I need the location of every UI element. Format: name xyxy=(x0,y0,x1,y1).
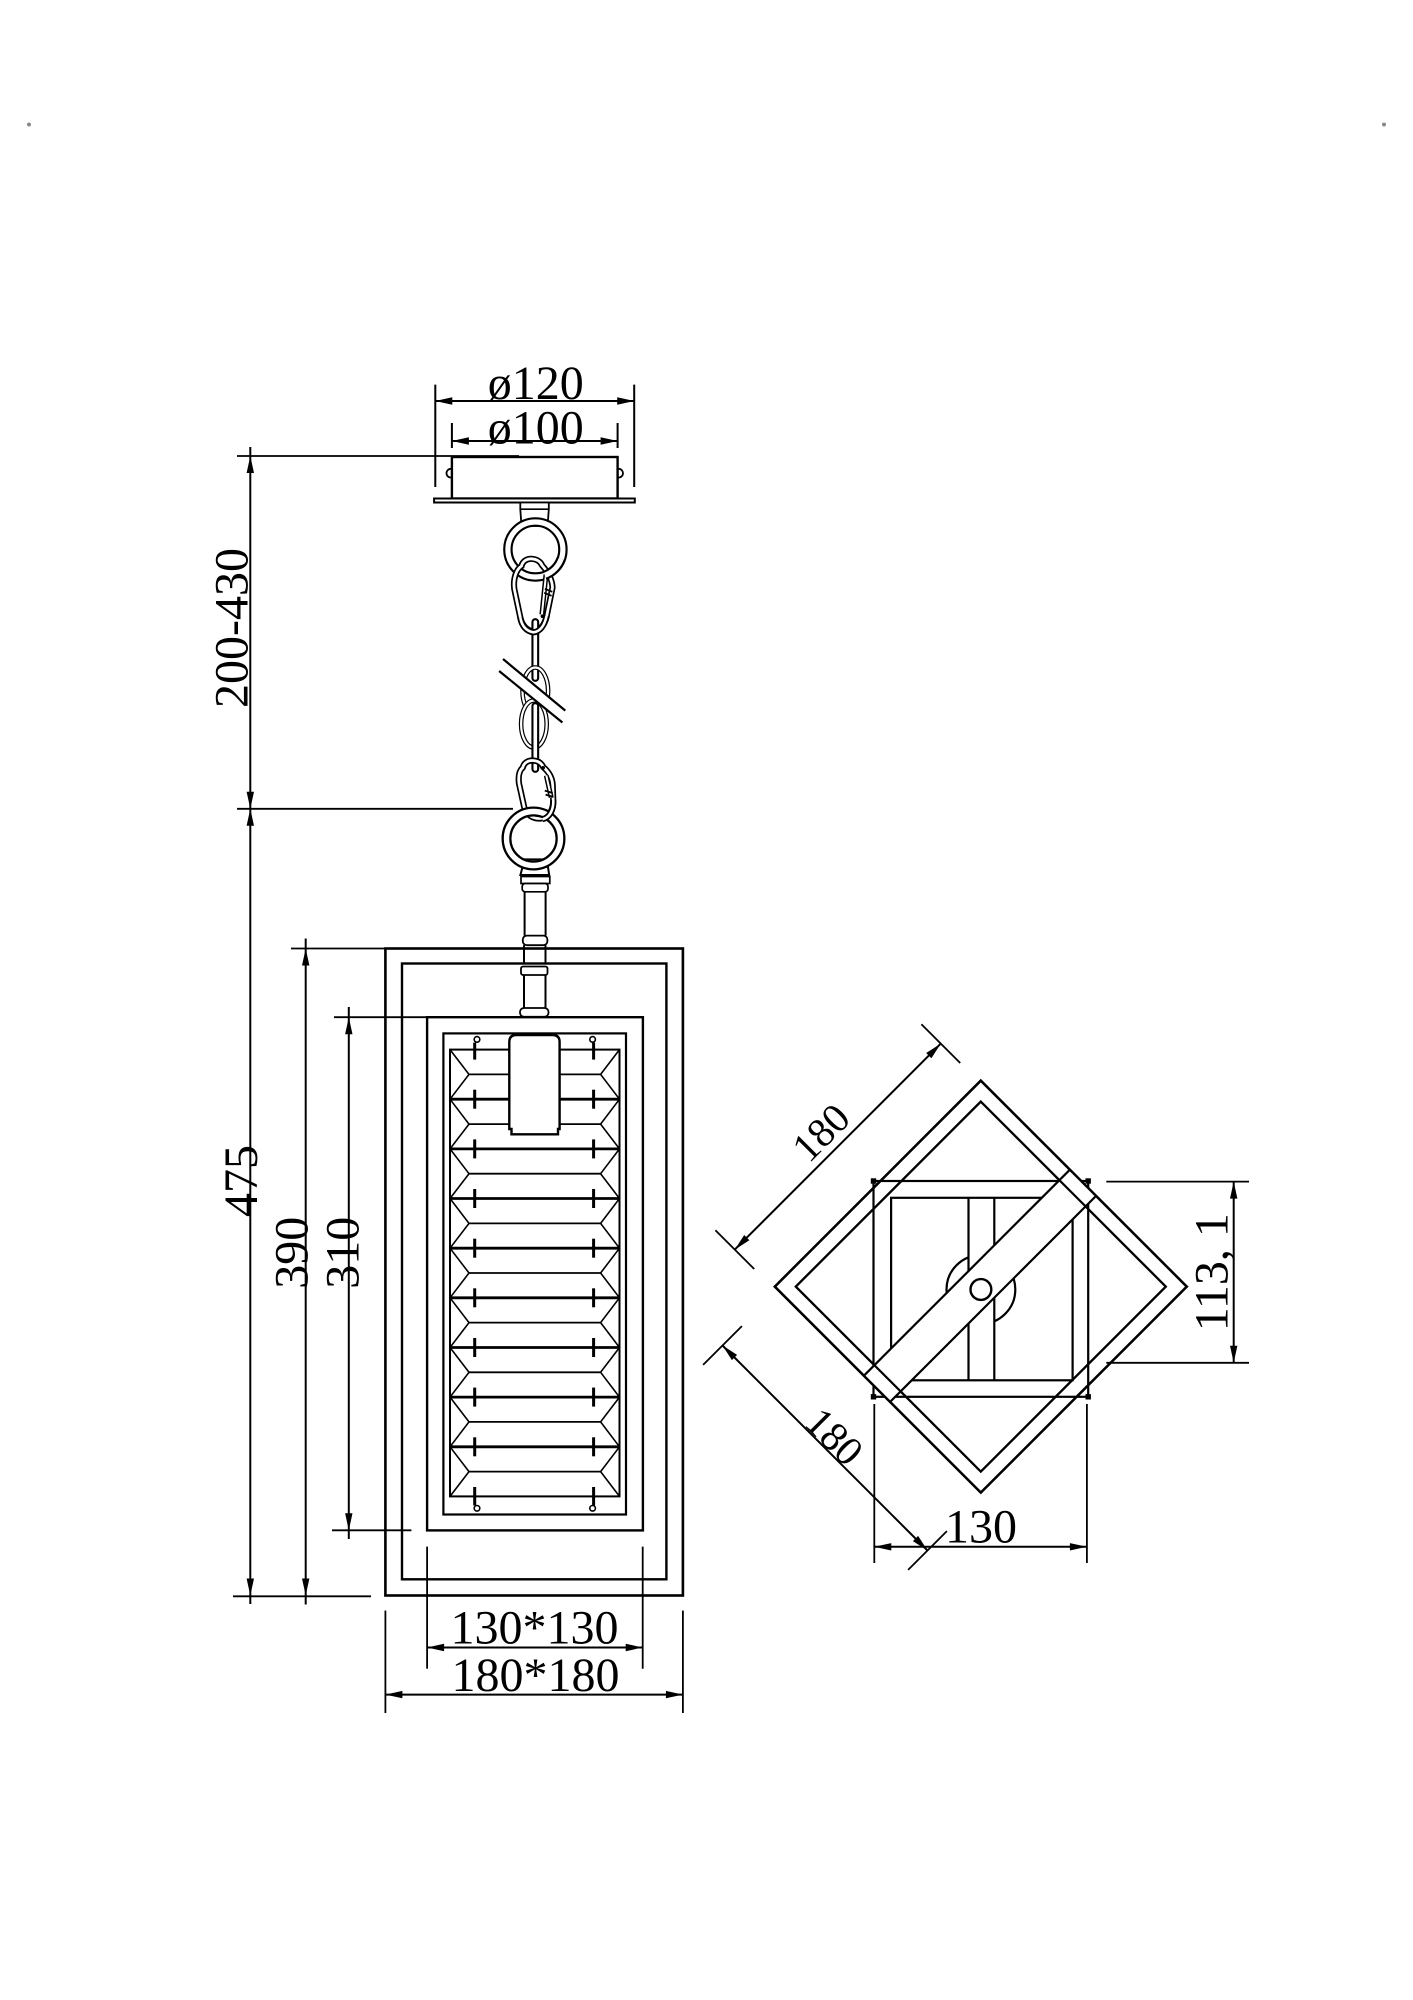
svg-text:310: 310 xyxy=(317,1217,370,1289)
svg-text:130: 130 xyxy=(945,1501,1017,1554)
svg-text:113, 1: 113, 1 xyxy=(1186,1213,1239,1331)
svg-text:390: 390 xyxy=(266,1217,319,1289)
svg-text:180*180: 180*180 xyxy=(452,1649,620,1702)
svg-text:130*130: 130*130 xyxy=(451,1602,619,1655)
svg-text:475: 475 xyxy=(215,1145,268,1217)
svg-text:200-430: 200-430 xyxy=(206,548,259,708)
svg-text:ø100: ø100 xyxy=(488,402,584,455)
